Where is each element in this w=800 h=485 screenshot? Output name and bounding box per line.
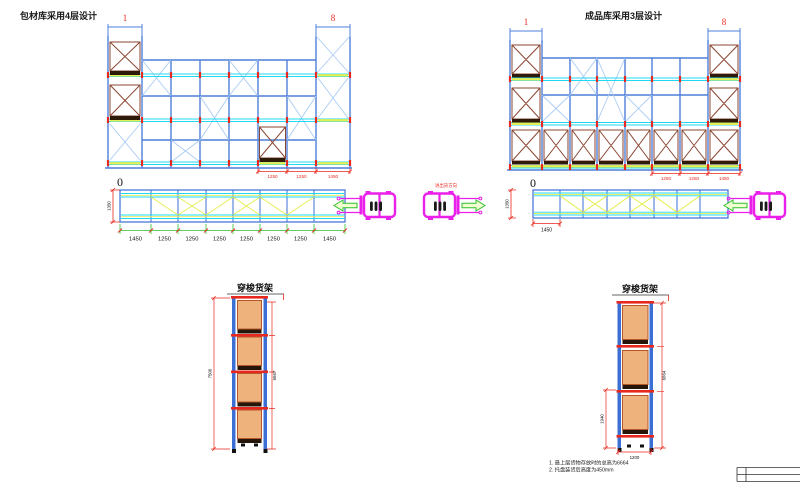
left-origin-marker: 0 (117, 175, 123, 189)
right-plan-first-bay-dim: 1450 (541, 228, 552, 234)
left-elev-dim-1: 1250 (267, 174, 278, 179)
plan-bay-dim-8: 1450 (323, 237, 336, 243)
left-plan-depth-dim: 1350 (107, 201, 112, 211)
plan-bay-dim-1: 1450 (129, 237, 142, 243)
shuttle-left-outer-dim: 7500 (208, 368, 213, 378)
right-frame-first-label: 1 (524, 17, 529, 27)
right-design-title: 成品库采用3层设计 (585, 10, 662, 21)
rack-columns (507, 40, 743, 170)
mast (360, 196, 363, 215)
plan-bay-dim-6: 1250 (267, 237, 280, 243)
left-frame-last-label: 8 (331, 13, 336, 23)
left-design-title: 包材库采用4层设计 (19, 10, 97, 21)
right-frame-last-label: 8 (722, 17, 727, 27)
right-elev-dim-3: 1450 (719, 176, 730, 181)
shuttle-right-width-dim: 1200 (630, 455, 640, 460)
shuttle-right-lower-dim: 1940 (600, 414, 605, 424)
left-elev-dim-3: 1450 (328, 174, 339, 179)
left-elev-dim-2: 1250 (296, 174, 307, 179)
right-plan-depth-dim: 1350 (505, 199, 510, 209)
engine-slots (370, 202, 382, 212)
shuttle-left-inner-dim: 6667 (272, 370, 277, 380)
right-elev-dim-1: 1250 (661, 176, 672, 181)
upright-column (618, 302, 622, 448)
note-line-1: 1. 最上层货物存放时的总高为6664 (549, 459, 629, 467)
left-frame-first-label: 1 (123, 13, 128, 23)
plan-bay-dim-7: 1250 (294, 237, 307, 243)
cad-drawing-canvas: 包材库采用4层设计 1 8 1250 1250 1450 0 1350 1450… (0, 0, 800, 485)
plan-bay-dim-5: 1250 (240, 237, 253, 243)
right-origin-marker: 0 (530, 176, 536, 190)
note-line-2: 2. 托盘装货后高度为450mm (549, 466, 614, 474)
engine-slots (760, 202, 772, 212)
shuttle-left-title: 穿梭货架 (237, 282, 273, 293)
shuttle-right-outer-dim: 6664 (662, 370, 667, 380)
plan-bay-dim-4: 1250 (213, 237, 226, 243)
engine-slots (434, 202, 446, 212)
traffic-direction-label: 进出货方向 (435, 182, 457, 189)
plan-bay-dim-2: 1250 (158, 237, 171, 243)
mast (750, 196, 753, 215)
load-boxes (623, 306, 649, 430)
right-elev-dim-2: 1250 (689, 176, 700, 181)
plan-bay-dim-3: 1250 (186, 237, 199, 243)
shuttle-right-title: 穿梭货架 (622, 283, 658, 294)
upright-column (650, 302, 654, 448)
